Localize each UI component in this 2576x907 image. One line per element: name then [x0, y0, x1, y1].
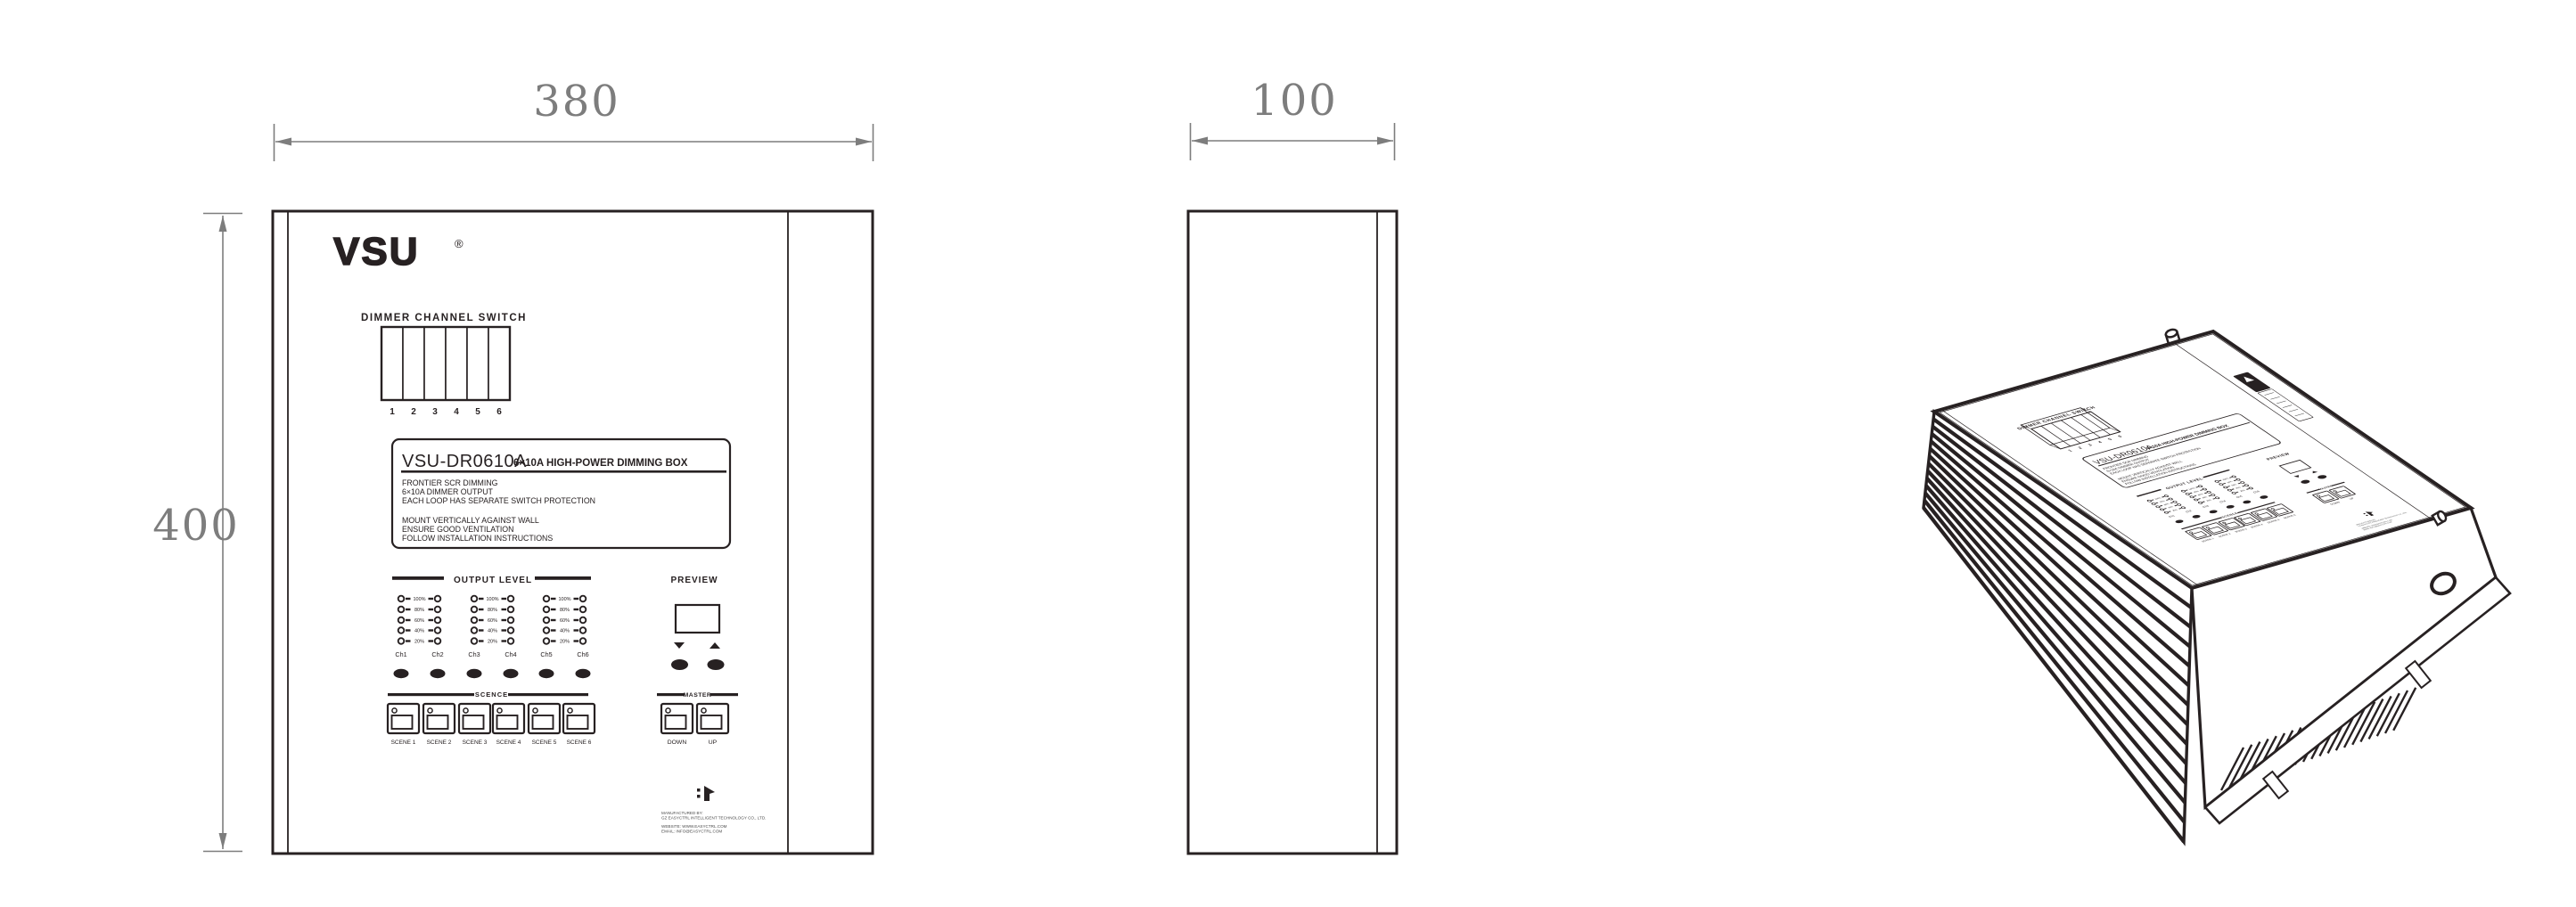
top-gland-icon — [2165, 328, 2180, 343]
side-outline — [1188, 211, 1397, 854]
drawing-canvas: DIMMER CHANNEL SWITCH VSU-DR0610A 6×10A … — [0, 0, 2576, 907]
arrowhead-icon — [1377, 137, 1393, 145]
front-view — [273, 211, 873, 854]
arrowhead-icon — [856, 138, 872, 146]
front-height-dimension: 400 — [152, 501, 240, 551]
front-width-dimension: 380 — [533, 77, 620, 127]
side-view — [1188, 211, 1397, 854]
drawing-page: DIMMER CHANNEL SWITCH VSU-DR0610A 6×10A … — [0, 0, 2576, 907]
side-width-dimension: 100 — [1251, 76, 1338, 126]
isometric-view — [1924, 328, 2510, 842]
arrowhead-icon — [219, 216, 227, 232]
arrowhead-icon — [1192, 137, 1208, 145]
front-panel-art — [273, 211, 873, 854]
flange-notch — [2406, 661, 2431, 688]
arrowhead-icon — [219, 833, 227, 849]
arrowhead-icon — [275, 138, 291, 146]
